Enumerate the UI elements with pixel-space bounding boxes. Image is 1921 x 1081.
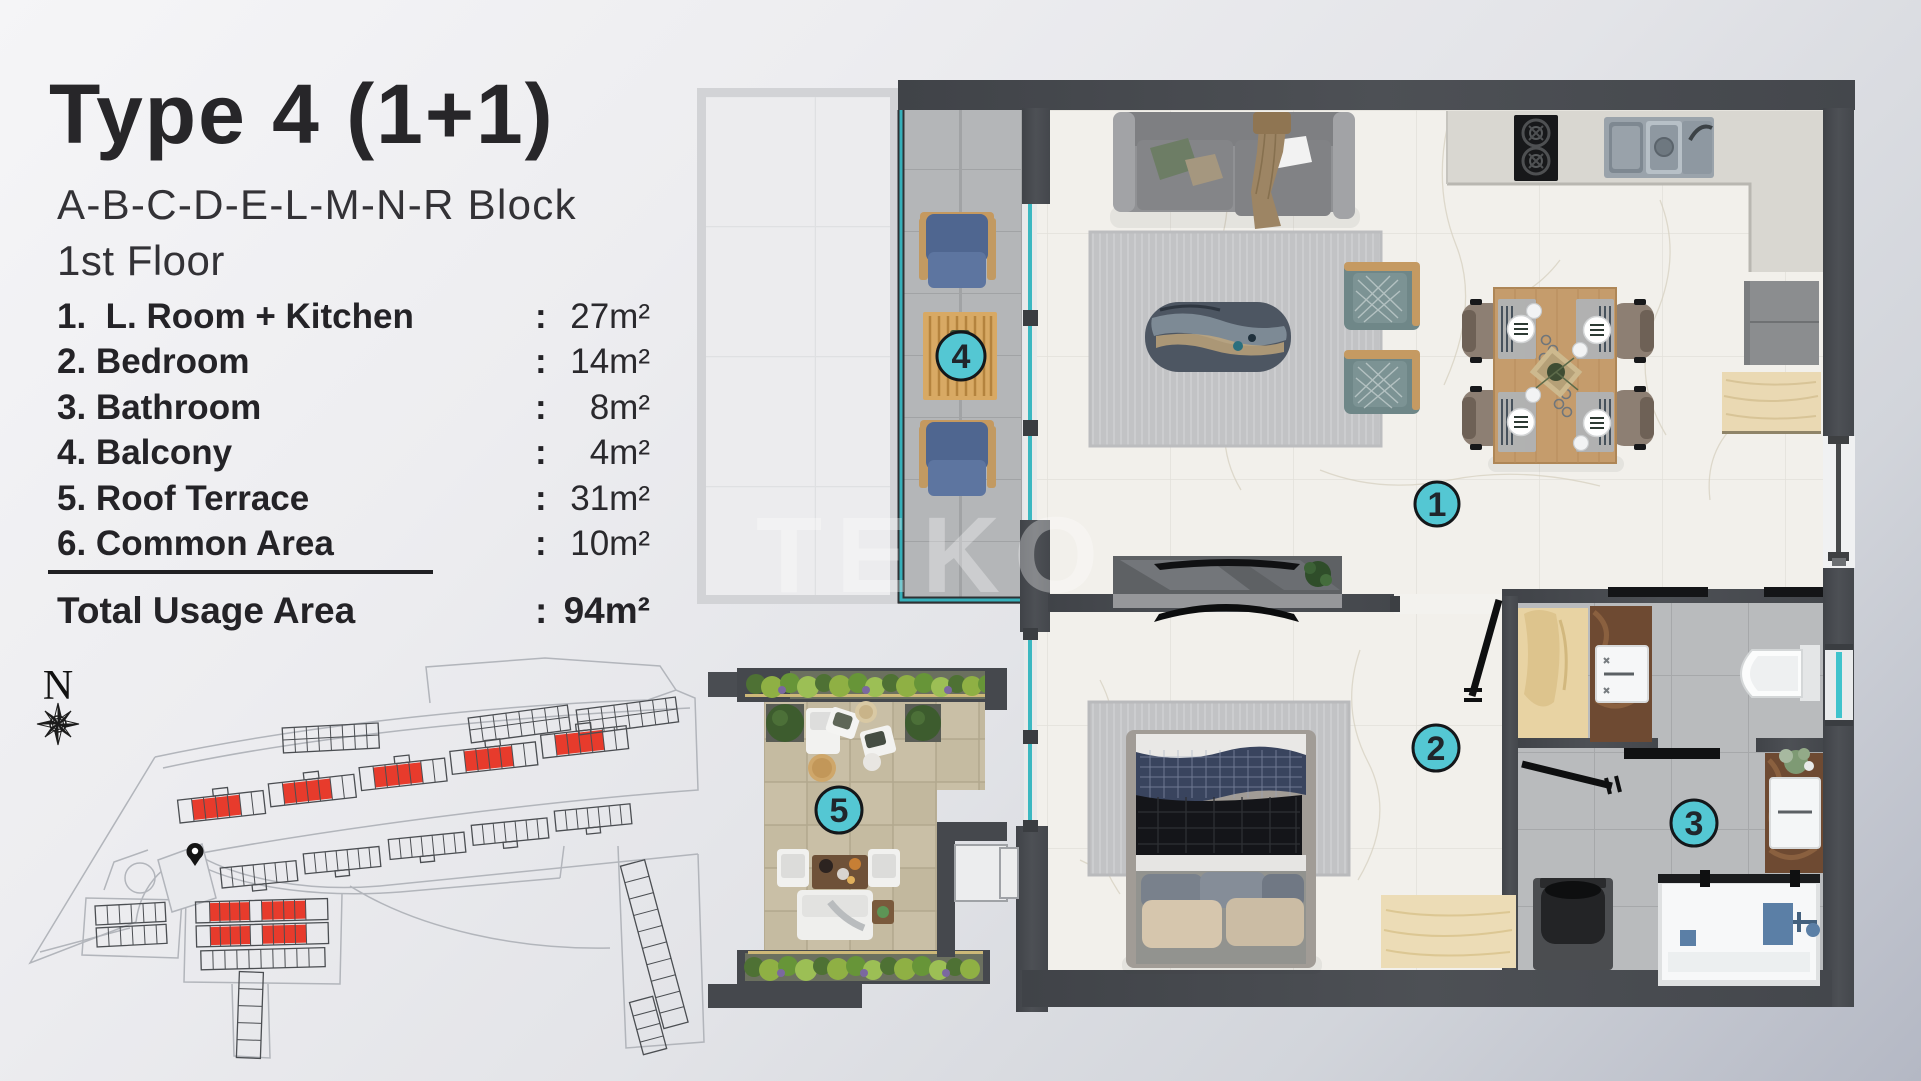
svg-text:TEKO: TEKO: [756, 494, 1112, 615]
svg-text:1: 1: [1428, 486, 1447, 524]
svg-text:4: 4: [952, 338, 971, 376]
svg-text:3: 3: [1685, 805, 1704, 843]
svg-text:5: 5: [830, 792, 849, 830]
svg-text:2: 2: [1427, 730, 1446, 768]
svg-text:N: N: [43, 663, 73, 709]
